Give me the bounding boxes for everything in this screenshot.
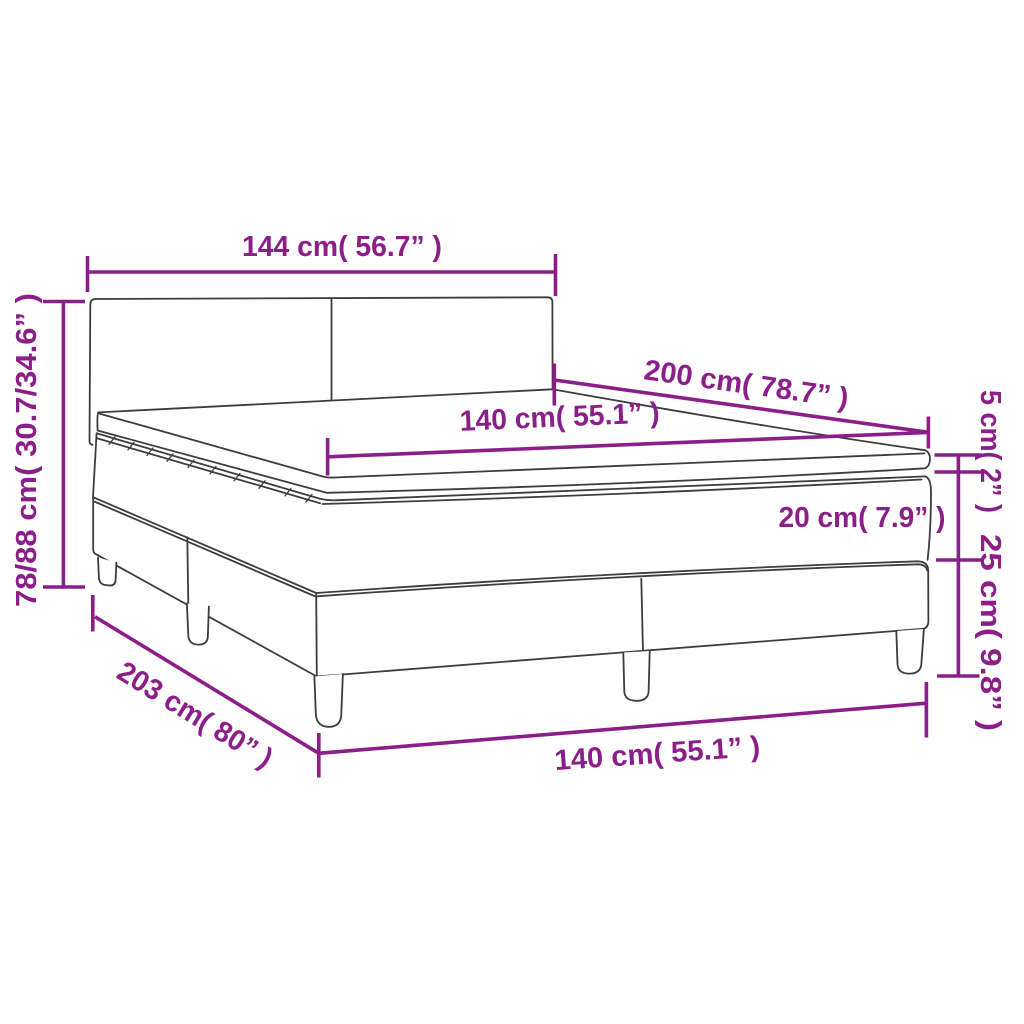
svg-text:78/88 cm( 30.7/34.6” ): 78/88 cm( 30.7/34.6” ): [11, 293, 43, 607]
svg-text:5 cm( 2” ): 5 cm( 2” ): [974, 390, 1006, 513]
svg-text:20 cm( 7.9” ): 20 cm( 7.9” ): [779, 502, 946, 534]
svg-text:25 cm( 9.8” ): 25 cm( 9.8” ): [974, 534, 1006, 731]
svg-text:144 cm( 56.7” ): 144 cm( 56.7” ): [242, 231, 442, 263]
